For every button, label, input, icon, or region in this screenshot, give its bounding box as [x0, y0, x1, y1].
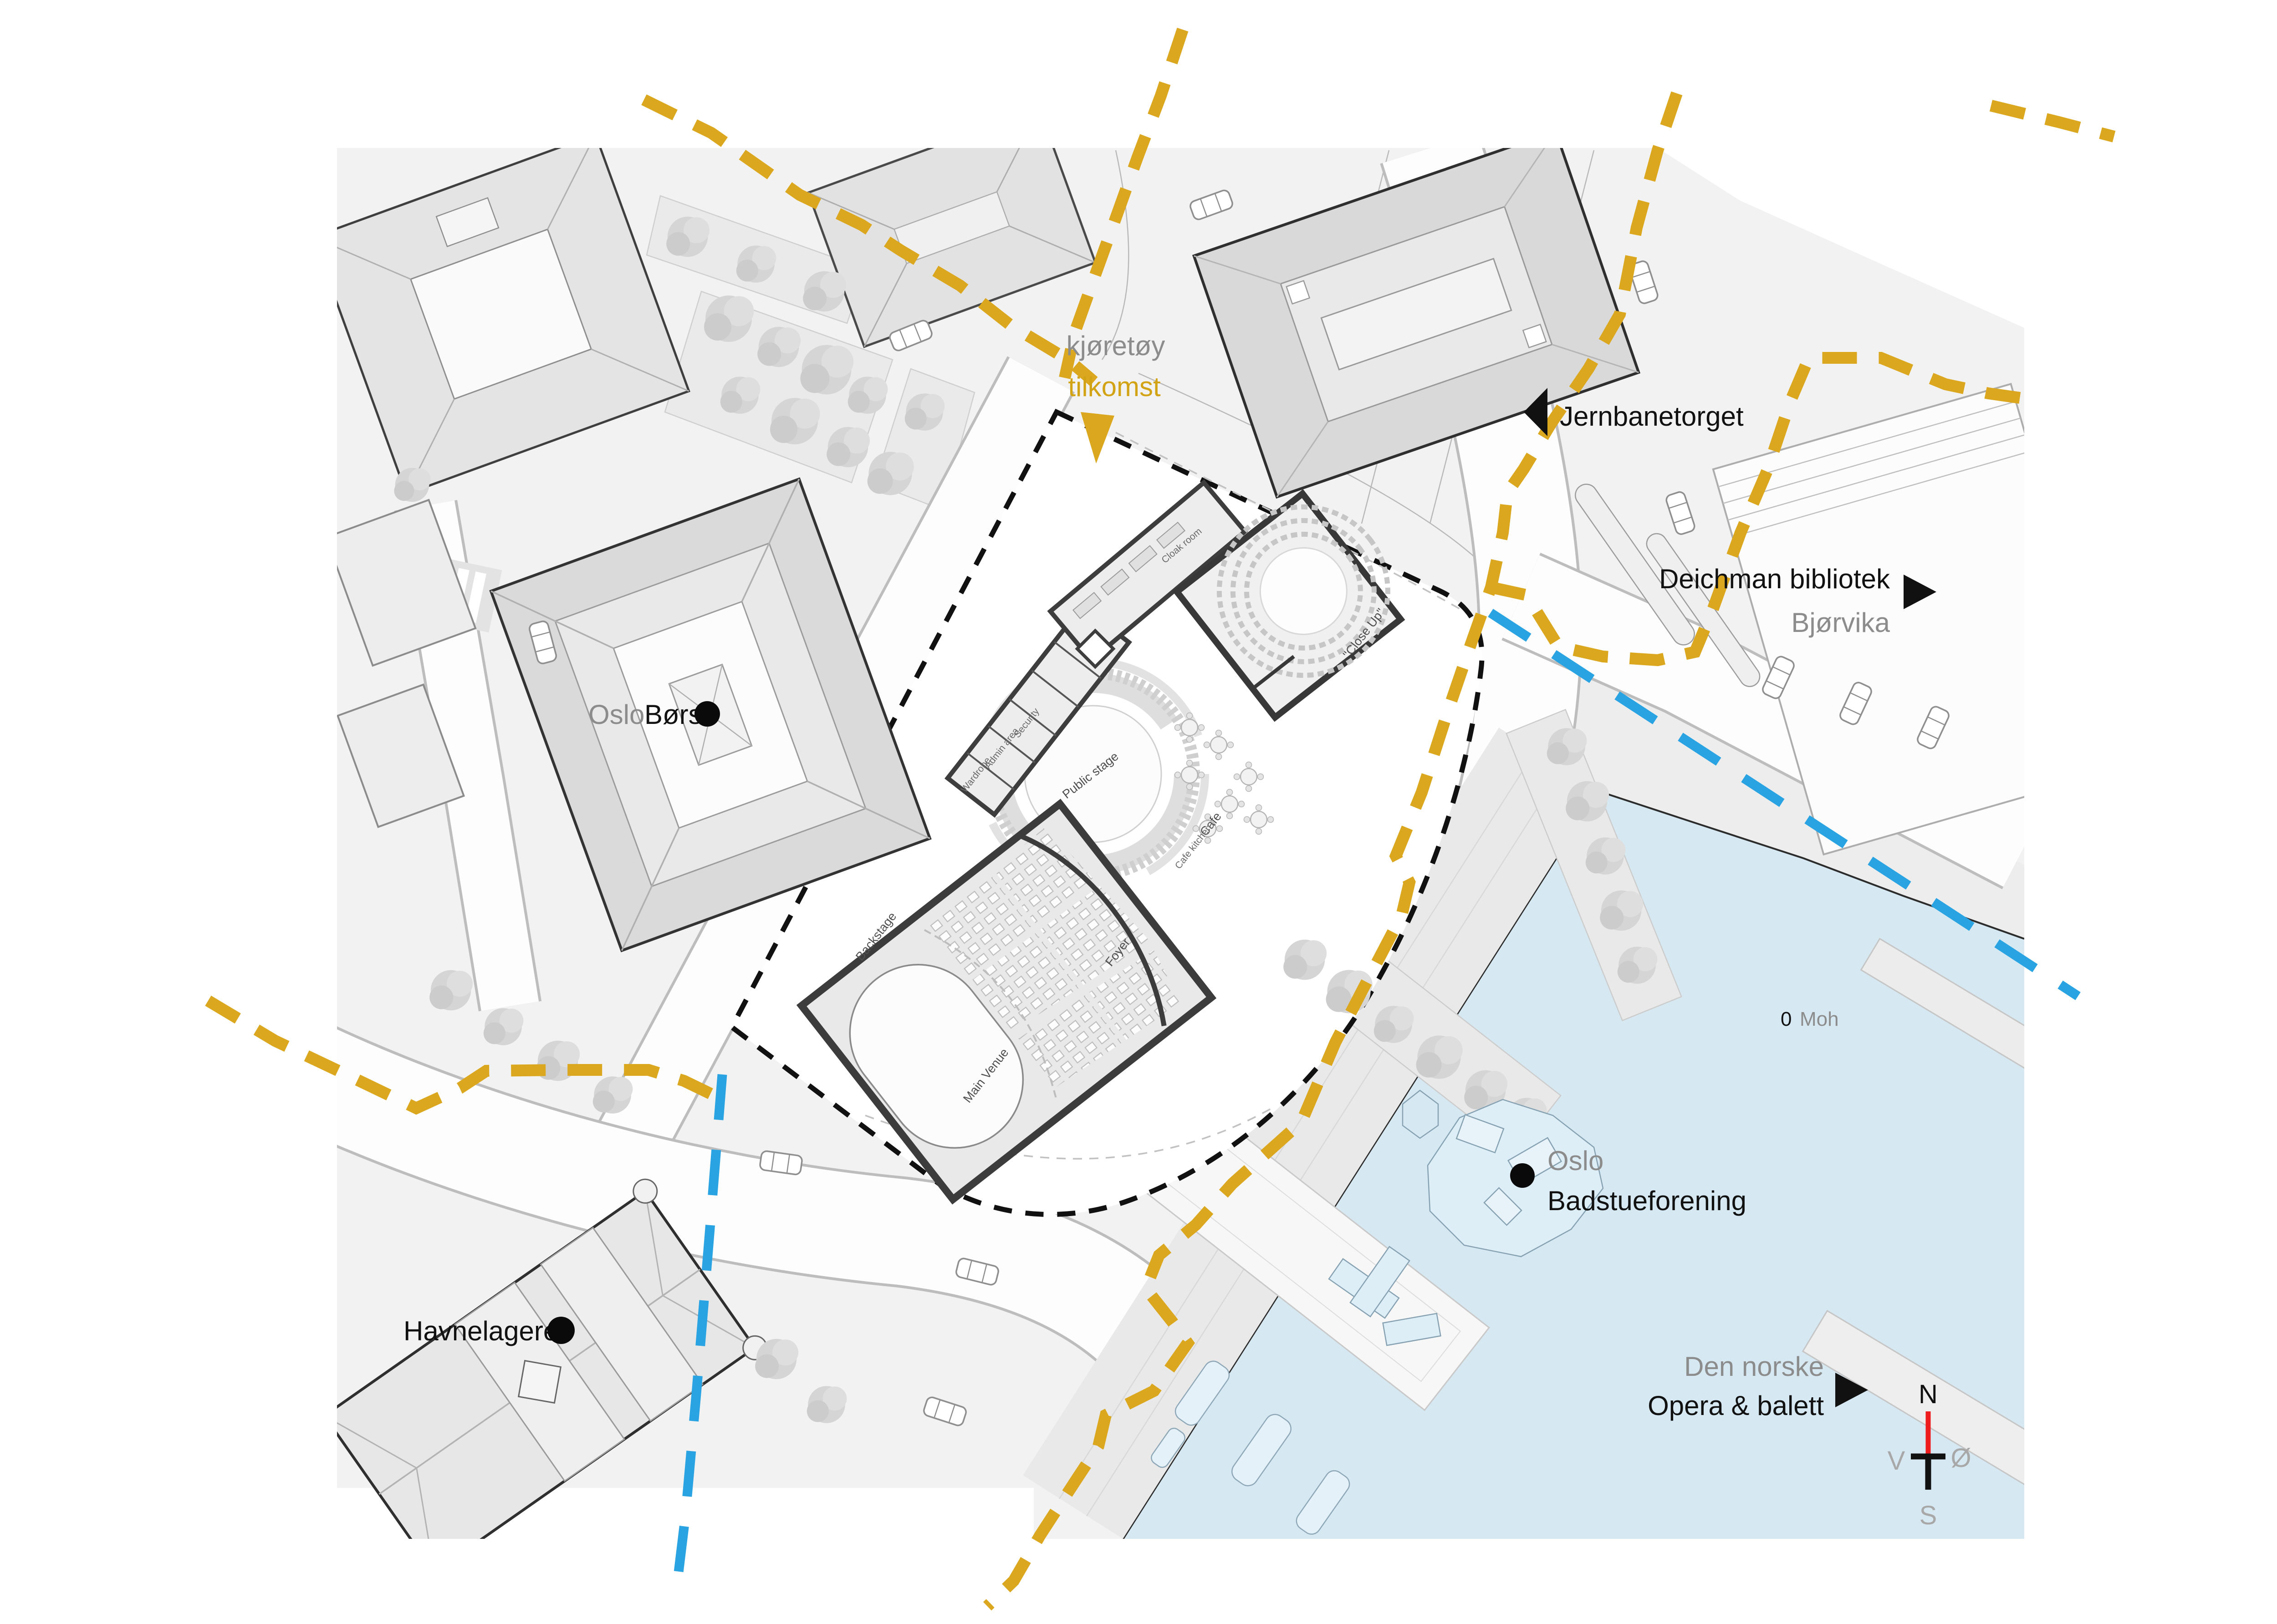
location-dot [1510, 1163, 1535, 1188]
route-yellow-top-right [1991, 106, 2114, 137]
vehicle-access-label-line1: kjøretøy [1067, 331, 1165, 361]
opera-label-line2: Opera & balett [1648, 1390, 1824, 1421]
deichman-label-line2: Bjørvika [1791, 607, 1890, 638]
site-plan-page: Public stage [0, 0, 2277, 1624]
compass-south-label: S [1920, 1501, 1937, 1530]
sea-level-value: 0 [1781, 1008, 1792, 1030]
jernbanetorget-label: Jernbanetorget [1560, 401, 1744, 432]
location-dot [694, 701, 720, 727]
site-plan-map: Public stage [0, 0, 2277, 1624]
badstueforening-label-line2: Badstueforening [1547, 1186, 1746, 1216]
compass-west-label: V [1888, 1446, 1905, 1476]
badstueforening-label-line1: Oslo [1547, 1145, 1603, 1176]
oslo-bors-label-word2: Børs [644, 699, 702, 730]
deichman-label-line1: Deichman bibliotek [1659, 564, 1890, 594]
opera-label-line1: Den norske [1684, 1351, 1824, 1382]
compass-east-label: Ø [1950, 1443, 1971, 1473]
sea-level-unit: Moh [1800, 1008, 1839, 1030]
compass-north-label: N [1919, 1380, 1938, 1409]
vehicle-access-label-line2: tilkomst [1068, 372, 1161, 402]
havnelageret-label: Havnelageret [403, 1316, 566, 1346]
oslo-bors-label-word1: Oslo [588, 699, 644, 730]
location-dot [547, 1317, 575, 1344]
